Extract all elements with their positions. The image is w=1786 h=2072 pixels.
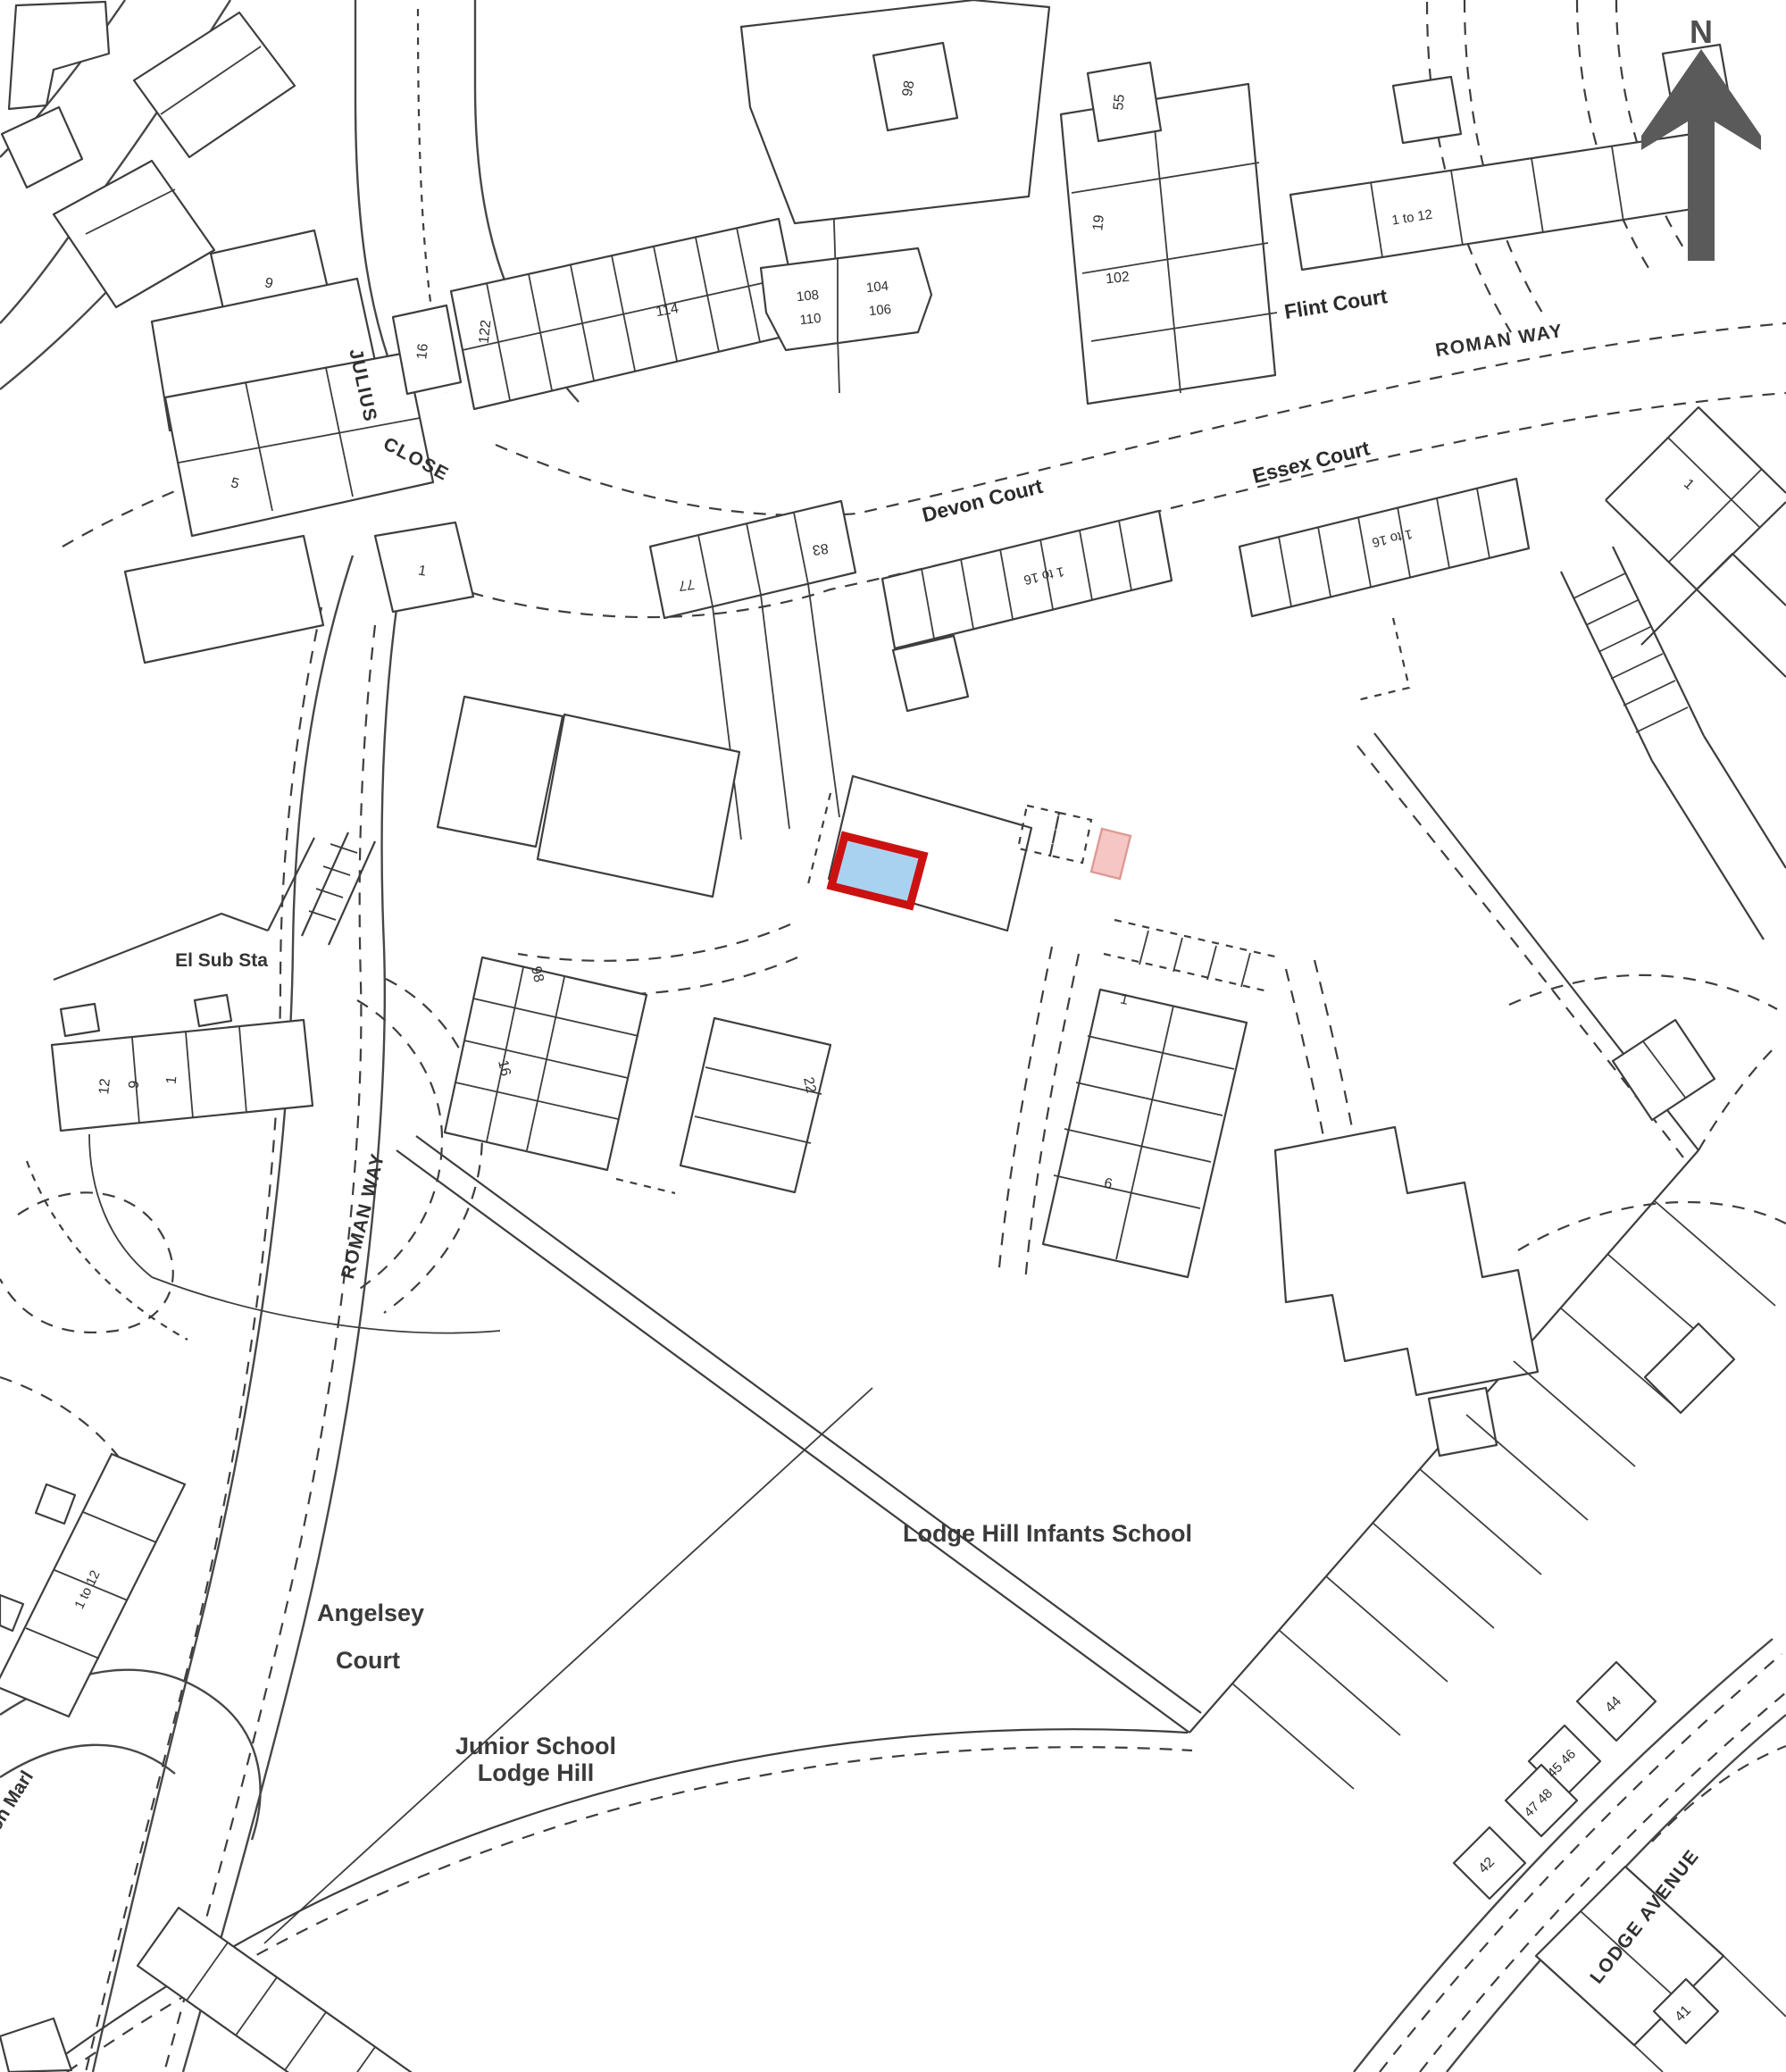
garage-ladder-rail — [1114, 920, 1279, 957]
garden-line — [808, 584, 839, 817]
topright-cluster — [1061, 63, 1277, 404]
building — [893, 636, 968, 711]
building-outline — [1606, 407, 1786, 500]
boundary-dash — [616, 1179, 675, 1193]
ladder-rung — [323, 866, 350, 875]
essex-court — [1239, 479, 1529, 700]
ladder-rung — [1623, 681, 1675, 706]
secondary-highlight-building — [1091, 829, 1131, 879]
label-angelsey-1: Angelsey — [317, 1600, 424, 1626]
school-annex — [1429, 1388, 1497, 1456]
terrace-block — [52, 1020, 313, 1131]
north-central-buildings — [741, 0, 1049, 350]
plot-divider — [1232, 1683, 1354, 1789]
ladder-rung — [330, 844, 357, 853]
right-edge-block — [1561, 407, 1786, 940]
housenum-110: 110 — [799, 311, 822, 328]
small-structure — [195, 995, 231, 1026]
boundary — [1723, 1956, 1786, 2017]
plot-divider — [1373, 1523, 1494, 1628]
substation-area — [52, 832, 500, 1333]
ladder-rung — [1173, 938, 1182, 972]
garage-ladder-rail — [1104, 954, 1268, 991]
building-outline — [1697, 589, 1786, 677]
compound-fence — [268, 838, 314, 931]
flint-court-terrace — [1290, 134, 1704, 270]
plot-divider — [1466, 1415, 1588, 1520]
label-devon-court: Devon Court — [920, 474, 1046, 527]
garden-line — [761, 595, 789, 829]
roman-way-west-edge — [93, 556, 353, 2072]
right-mid-block — [1043, 920, 1279, 1277]
building-slab — [538, 714, 739, 897]
ladder-rung — [1573, 573, 1625, 598]
plot-divider — [1514, 1361, 1635, 1466]
boundary — [1652, 761, 1764, 940]
lodge-ave-junction-dash — [1652, 1746, 1786, 1842]
garage-dash — [1050, 813, 1091, 863]
ladder-rail — [329, 841, 375, 945]
building-outline — [1606, 500, 1786, 589]
north-arrow: N — [1641, 13, 1761, 261]
building — [9, 2, 109, 109]
boundary-dash — [1357, 618, 1409, 700]
right-loop-dash-1 — [1509, 975, 1777, 1009]
housenum-104: 104 — [865, 279, 889, 297]
boundary — [1634, 2045, 1663, 2072]
garden-line — [89, 1134, 152, 1277]
plot-divider — [1279, 1630, 1400, 1735]
label-el-sub-sta: El Sub Sta — [175, 950, 268, 971]
school-building — [1275, 1127, 1538, 1395]
right-loop-dash-2 — [1518, 1202, 1786, 1250]
street-label-roman-way-left: ROMAN WAY — [338, 1151, 388, 1282]
ladder-rung — [1611, 654, 1663, 679]
building-outline — [1641, 554, 1786, 645]
garden-line — [152, 1277, 500, 1333]
map-canvas[interactable]: N JULIUS CLOSE ROMAN WAY ROMAN WAY LODGE… — [0, 0, 1786, 2072]
plot-divider — [1420, 1469, 1541, 1575]
house — [1645, 1324, 1734, 1413]
terrace-block — [650, 501, 855, 618]
label-junior-1: Junior School — [455, 1733, 616, 1759]
label-infants-school: Lodge Hill Infants School — [903, 1520, 1192, 1547]
ladder-rung — [1636, 707, 1688, 732]
ladder-rung — [1207, 946, 1216, 980]
plot-divider — [1326, 1576, 1448, 1682]
plot-divider — [1654, 1200, 1775, 1306]
building-block — [1061, 84, 1275, 404]
field-squiggle-dash — [0, 1192, 173, 1333]
ladder-rung — [1139, 931, 1148, 965]
substation-garden-dash — [27, 1161, 188, 1340]
housenum-122: 122 — [477, 319, 495, 344]
mid-road-dash-1 — [998, 947, 1052, 1277]
angelsey-court-buildings — [0, 1454, 423, 2072]
ladder-rung — [1241, 953, 1250, 987]
housenum-102: 102 — [1105, 270, 1130, 288]
north-arrow-label: N — [1690, 13, 1713, 50]
label-angelsey-2: Court — [336, 1647, 400, 1674]
building — [125, 536, 323, 663]
housenum-108: 108 — [796, 288, 820, 305]
ladder-rung — [1598, 627, 1650, 652]
housenum-19: 19 — [1090, 214, 1107, 232]
terrace-block-22 — [680, 1018, 830, 1192]
infants-school-building — [1275, 1020, 1715, 1456]
housenum-106: 106 — [868, 302, 892, 320]
terrace-block — [138, 1908, 423, 2072]
ladder-rung — [309, 911, 336, 920]
central-slabs — [438, 697, 1091, 931]
school-ne-dash — [1357, 746, 1683, 1157]
building — [1393, 77, 1461, 143]
building — [54, 161, 214, 307]
devon-court — [882, 511, 1172, 711]
housenum-55: 55 — [1111, 94, 1128, 112]
building — [134, 13, 295, 157]
housenum-1-sub: 1 — [164, 1075, 180, 1085]
label-on-marl: on Marl — [0, 1767, 38, 1835]
street-label-roman-way-top: ROMAN WAY — [1434, 321, 1565, 361]
label-flint-court: Flint Court — [1282, 284, 1389, 323]
boundary — [1704, 736, 1786, 868]
small-structure — [36, 1484, 75, 1524]
roman-way-left-dash-west — [86, 607, 321, 2072]
housenum-9-sub: 9 — [127, 1080, 143, 1090]
small-structure — [61, 1004, 99, 1036]
slab-dash-edge — [808, 793, 830, 884]
housenum-16: 16 — [414, 343, 431, 361]
label-junior-2: Lodge Hill — [478, 1759, 595, 1786]
flint-court — [1290, 45, 1730, 270]
building-divider — [1668, 438, 1759, 527]
housenum-98-top: 98 — [900, 79, 918, 98]
building — [0, 2018, 71, 2072]
ladder-rung — [1586, 600, 1638, 625]
small-structure — [0, 1595, 23, 1631]
housenum-83: 83 — [812, 540, 830, 557]
lodge-ave-dash-1 — [1380, 1654, 1782, 2072]
ne-road-dash-3 — [1577, 0, 1648, 268]
school-yard-dash-1 — [518, 924, 790, 961]
housenum-1-right: 1 — [1681, 476, 1697, 493]
housenum-77: 77 — [678, 576, 696, 593]
top-terrace — [393, 219, 802, 409]
building — [2, 107, 82, 188]
ne-bound-dash — [1698, 1045, 1777, 1150]
housenum-12-sub: 12 — [96, 1078, 113, 1096]
label-essex-court: Essex Court — [1250, 436, 1373, 488]
site-plan-svg: N JULIUS CLOSE ROMAN WAY ROMAN WAY LODGE… — [0, 0, 1786, 2072]
